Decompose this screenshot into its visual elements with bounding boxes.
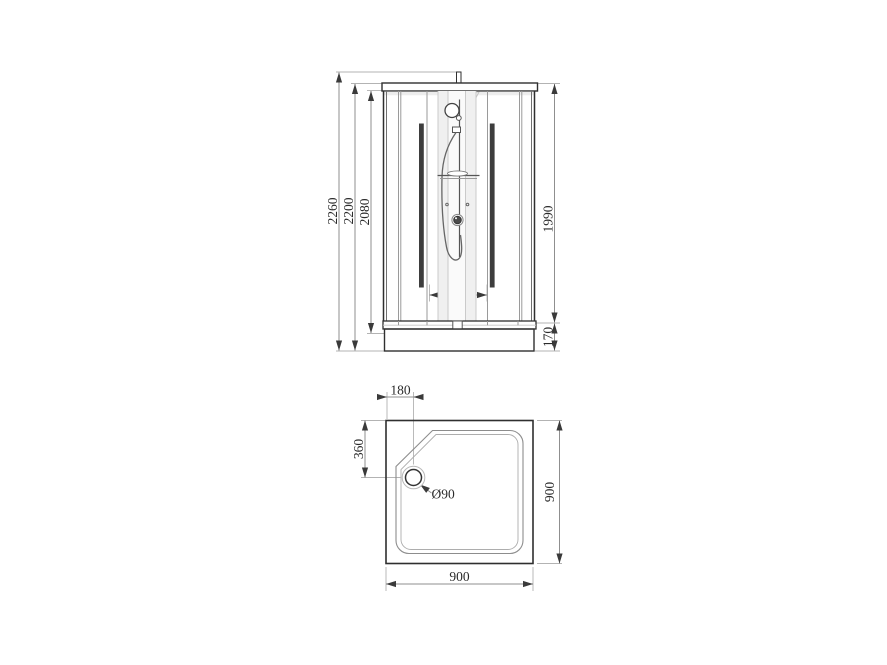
drain-hole (406, 470, 422, 486)
dim-tray-height-label: 170 (541, 327, 556, 348)
dim-depth-label: 900 (542, 482, 557, 503)
dim-overall-height-label: 2260 (325, 197, 340, 224)
roof-panel (382, 83, 538, 91)
dim-width-label: 900 (449, 569, 470, 584)
dim-drain-offset-top-label: 360 (351, 439, 366, 460)
tray-floor-edge (401, 435, 518, 550)
drawing-canvas: 2260 2200 2080 1990 170 420 (0, 0, 887, 665)
dim-glass-height-label: 1990 (541, 205, 556, 232)
shower-head-icon (445, 104, 459, 118)
dim-drain-offset-left-label: 180 (390, 383, 411, 398)
hand-shower-bracket (453, 127, 461, 133)
tray (383, 321, 536, 351)
cabin-body (382, 72, 538, 351)
dim-cabin-height-label: 2200 (341, 197, 356, 224)
left-handle-bar (419, 124, 424, 288)
tray-apron (385, 329, 535, 351)
dim-inner-height-label: 2080 (357, 198, 372, 225)
mixer-knob (454, 216, 462, 224)
mixer-knob-highlight (455, 217, 457, 219)
soap-dish (448, 171, 468, 176)
tray-inner-rim (396, 431, 523, 554)
plan-dimension-lines (365, 397, 560, 584)
shower-head-joint (456, 116, 461, 121)
tray-plan (386, 421, 533, 564)
front-view: 2260 2200 2080 1990 170 420 (325, 72, 560, 351)
shower-panel-band (448, 91, 466, 321)
roof-pipe (457, 72, 462, 83)
dim-drain-diameter-label: Ø90 (432, 487, 455, 502)
track-stop (453, 321, 462, 329)
plan-extension-lines (361, 392, 562, 591)
shower-cabin-technical-drawing: 2260 2200 2080 1990 170 420 (0, 0, 887, 665)
plan-view: 180 360 Ø90 900 900 (351, 383, 562, 592)
right-handle-bar (490, 124, 495, 288)
tray-outer-square (386, 421, 533, 564)
